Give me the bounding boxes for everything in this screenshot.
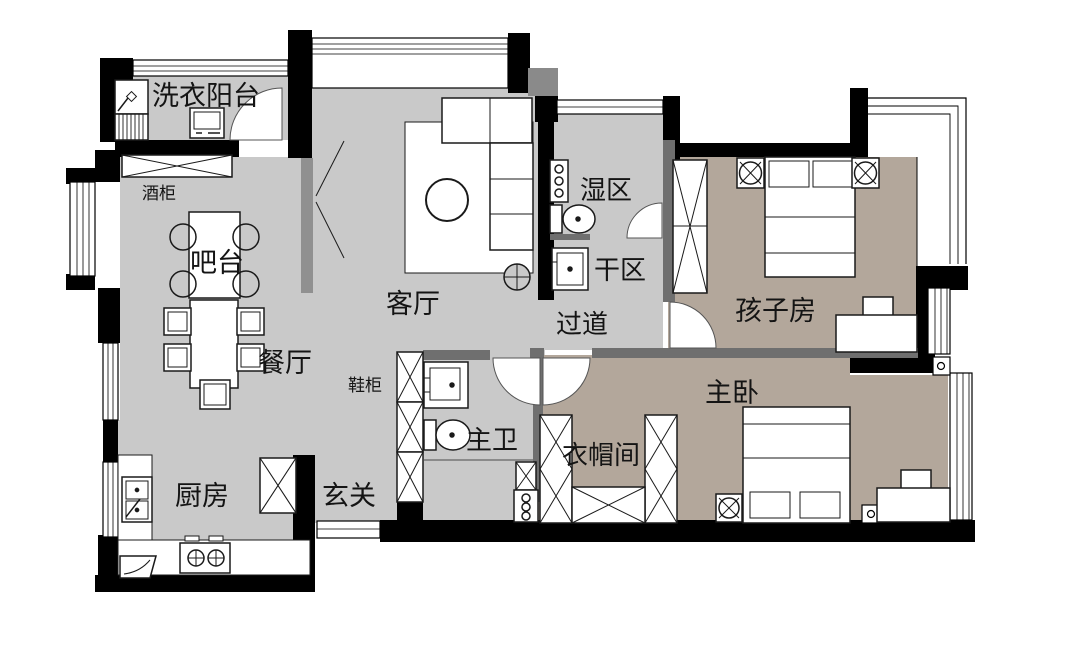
dining-table	[190, 300, 238, 388]
laundry-cabinet	[190, 108, 224, 138]
entry-threshold	[317, 521, 380, 538]
bath-sink	[424, 362, 468, 408]
label-wet-area: 湿区	[580, 175, 632, 205]
corner-sink	[120, 556, 156, 578]
drying-rack	[115, 114, 148, 140]
window-left-bay	[70, 182, 95, 276]
label-shoe-cabinet: 鞋柜	[348, 376, 382, 395]
window-laundry-top	[133, 60, 288, 76]
label-wine-cabinet: 酒柜	[142, 184, 176, 203]
tv-wall	[301, 158, 313, 293]
wet-area-toilet	[550, 205, 595, 233]
master-nightstand	[716, 494, 742, 522]
label-cloakroom: 衣帽间	[562, 440, 640, 470]
window-left-dining	[103, 343, 118, 420]
label-living-room: 客厅	[386, 289, 440, 319]
label-entry: 玄关	[322, 481, 376, 511]
kids-bed	[765, 157, 855, 277]
label-master-bath: 主卫	[466, 425, 518, 455]
washing-machine	[115, 80, 148, 114]
label-bar-counter: 吧台	[190, 248, 244, 278]
window-living-top	[312, 38, 508, 88]
shoe-cabinet-unit	[397, 352, 423, 502]
floor-plan: 洗衣阳台 酒柜 吧台 餐厅 客厅 湿区 干区 过道 孩子房 主卧 主卫 衣帽间 …	[0, 0, 1074, 653]
wet-area-shelf	[550, 160, 568, 202]
label-dry-area: 干区	[594, 255, 646, 285]
label-dining-room: 餐厅	[258, 348, 312, 378]
fridge	[260, 458, 296, 513]
label-hallway: 过道	[556, 309, 608, 339]
window-left-kitchen	[103, 462, 118, 537]
floor-plan-svg: 洗衣阳台 酒柜 吧台 餐厅 客厅 湿区 干区 过道 孩子房 主卧 主卫 衣帽间 …	[0, 0, 1074, 653]
bath-toilet	[424, 420, 470, 450]
kids-wardrobe	[673, 160, 707, 293]
wine-cabinet-unit	[122, 155, 232, 177]
label-kids-room: 孩子房	[735, 296, 816, 326]
floor-lamp	[504, 264, 530, 290]
dry-area-sink	[552, 248, 588, 290]
window-wet-top	[557, 100, 663, 114]
label-kitchen: 厨房	[175, 481, 229, 511]
label-master-bedroom: 主卧	[705, 378, 759, 408]
window-master-right	[950, 373, 972, 520]
bath-shelf	[514, 462, 538, 522]
window-kids-right	[928, 288, 950, 354]
master-bed	[743, 407, 850, 523]
label-laundry-balcony: 洗衣阳台	[152, 81, 260, 111]
kitchen-sink	[122, 477, 152, 522]
